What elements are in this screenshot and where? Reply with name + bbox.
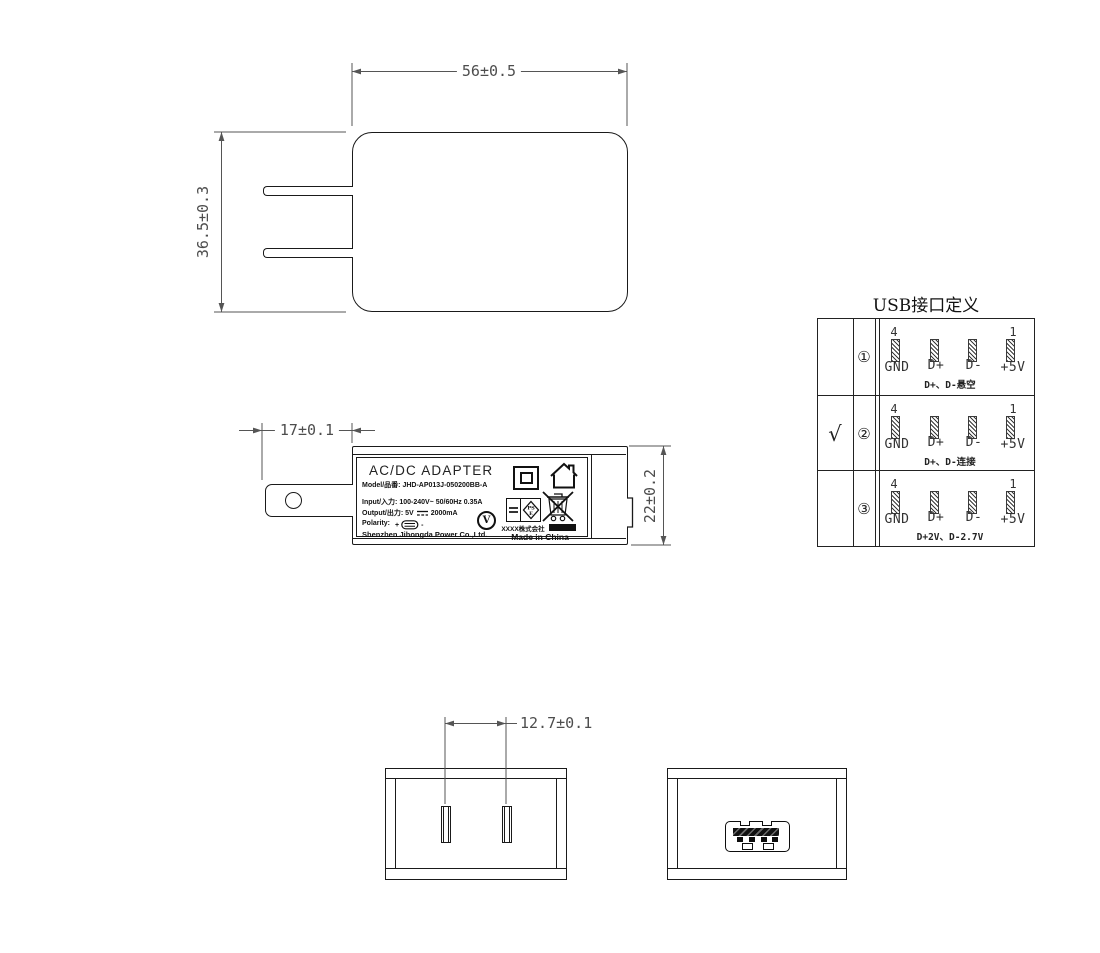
bump-mask <box>625 499 628 526</box>
usb-bottom-tab <box>763 843 774 850</box>
label-polarity-prefix: Polarity: <box>362 520 390 527</box>
row3-index: ③ <box>857 500 870 518</box>
usb-pin-icon <box>891 491 900 514</box>
row3-pin-label-dplus: D+ <box>928 510 945 525</box>
rear-view-top-strip-line <box>668 778 846 779</box>
label-polarity-minus: - <box>421 522 423 529</box>
row2-pin-label-5v: +5V <box>1001 437 1026 452</box>
label-polarity-plus: + <box>395 522 399 529</box>
post-2005-black-bar <box>549 524 576 531</box>
row3-caption: D+2V、D-2.7V <box>917 529 984 543</box>
front-view-right-inner-line <box>556 779 557 868</box>
bottom-front-view-body <box>385 768 567 880</box>
usb-pin-icon <box>1006 491 1015 514</box>
row1-pin-number-1: 1 <box>1009 325 1016 339</box>
label-output-line: Output/出力: 5V 2000mA <box>362 508 458 518</box>
row1-pin-label-dminus: D- <box>966 358 983 373</box>
made-in-china-text: Made in China <box>511 532 569 542</box>
row3-pin-label-dminus: D- <box>966 510 983 525</box>
front-view-bottom-strip-line <box>386 868 566 869</box>
label-model-line: Model/品番: JHD-AP013J-050200BB-A <box>362 480 487 490</box>
prong-hole <box>285 492 302 509</box>
efficiency-level-v-icon: V <box>477 511 496 530</box>
label-title: AC/DC ADAPTER <box>369 463 493 478</box>
dim-pin-pitch-text: 12.7±0.1 <box>518 714 594 732</box>
pse-mark-icon: PS E <box>506 498 541 522</box>
usb-top-notch <box>762 821 772 826</box>
dim-side-height-text: 36.5±0.3 <box>194 181 212 263</box>
row3-pin-number-1: 1 <box>1009 477 1016 491</box>
row1-pin-label-dplus: D+ <box>928 358 945 373</box>
row1-index: ① <box>857 348 870 366</box>
table-col-line-1 <box>853 319 854 546</box>
row2-pin-label-gnd: GND <box>885 437 910 452</box>
row1-caption: D+、D-悬空 <box>924 377 975 391</box>
table-col-line-2a <box>875 319 876 546</box>
label-output-prefix: Output/出力: 5V <box>362 508 414 518</box>
class2-inner-square <box>520 472 533 484</box>
front-view-top-strip-line <box>386 778 566 779</box>
table-row-line-1 <box>818 395 1034 396</box>
top-view-prong-upper <box>263 186 353 196</box>
usb-tongue <box>733 828 779 836</box>
row2-check: √ <box>828 422 841 446</box>
rear-view-left-inner-line <box>677 779 678 868</box>
top-view-body <box>352 132 628 312</box>
label-polarity-line: Polarity: + - <box>362 518 423 528</box>
rear-view-right-inner-line <box>836 779 837 868</box>
side-view-prong <box>265 484 353 517</box>
usb-top-notch <box>740 821 750 826</box>
side-view-divider-line <box>591 455 592 538</box>
dim-prong-length-text: 17±0.1 <box>275 421 339 439</box>
table-row-line-2 <box>818 470 1034 471</box>
row1-pin-label-gnd: GND <box>885 360 910 375</box>
row3-pin-label-gnd: GND <box>885 512 910 527</box>
pse-agency-cell <box>507 499 521 521</box>
row3-pin-label-5v: +5V <box>1001 512 1026 527</box>
pse-diamond-cell: PS E <box>521 499 540 521</box>
label-output-suffix: 2000mA <box>431 510 458 517</box>
usb-contact <box>737 837 743 842</box>
usb-pin-icon <box>891 339 900 362</box>
usb-contact <box>761 837 767 842</box>
usb-receptacle <box>725 821 790 852</box>
class2-double-square-icon <box>513 466 539 490</box>
prong-slot-right <box>502 806 512 843</box>
rear-view-bottom-strip-line <box>668 868 846 869</box>
usb-contact <box>772 837 778 842</box>
usb-contact <box>749 837 755 842</box>
usb-pin-icon <box>1006 339 1015 362</box>
technical-drawing-canvas: AC/DC ADAPTER Model/品番: JHD-AP013J-05020… <box>0 0 1100 953</box>
table-col-line-2b <box>879 319 880 546</box>
usb-pin-icon <box>891 416 900 439</box>
dc-symbol-icon <box>416 509 429 517</box>
indoor-use-house-icon <box>548 461 580 490</box>
row2-index: ② <box>857 425 870 443</box>
row1-pin-number-4: 4 <box>890 325 897 339</box>
top-view-prong-lower <box>263 248 353 258</box>
row2-pin-label-dplus: D+ <box>928 435 945 450</box>
prong-slot-left <box>441 806 451 843</box>
svg-text:E: E <box>529 511 533 517</box>
row3-pin-number-4: 4 <box>890 477 897 491</box>
weee-crossed-bin-icon <box>541 488 575 524</box>
row2-pin-label-dminus: D- <box>966 435 983 450</box>
row1-pin-label-5v: +5V <box>1001 360 1026 375</box>
label-input-line: Input/入力: 100-240V~ 50/60Hz 0.35A <box>362 497 482 507</box>
usb-polarity-icon <box>401 520 419 530</box>
row2-caption: D+、D-连接 <box>924 454 975 468</box>
usb-bottom-tab <box>742 843 753 850</box>
row2-pin-number-4: 4 <box>890 402 897 416</box>
dim-body-thickness-text: 22±0.2 <box>641 464 659 528</box>
usb-table-title: USB接口定义 <box>873 291 979 316</box>
usb-pin-icon <box>1006 416 1015 439</box>
front-view-left-inner-line <box>395 779 396 868</box>
row2-pin-number-1: 1 <box>1009 402 1016 416</box>
dim-top-width-text: 56±0.5 <box>457 62 521 80</box>
side-view-top-edge-line <box>353 454 626 455</box>
pse-diamond-icon: PS E <box>522 500 540 520</box>
label-company-line: Shenzhen Jihongda Power Co.,Ltd. <box>362 530 487 539</box>
